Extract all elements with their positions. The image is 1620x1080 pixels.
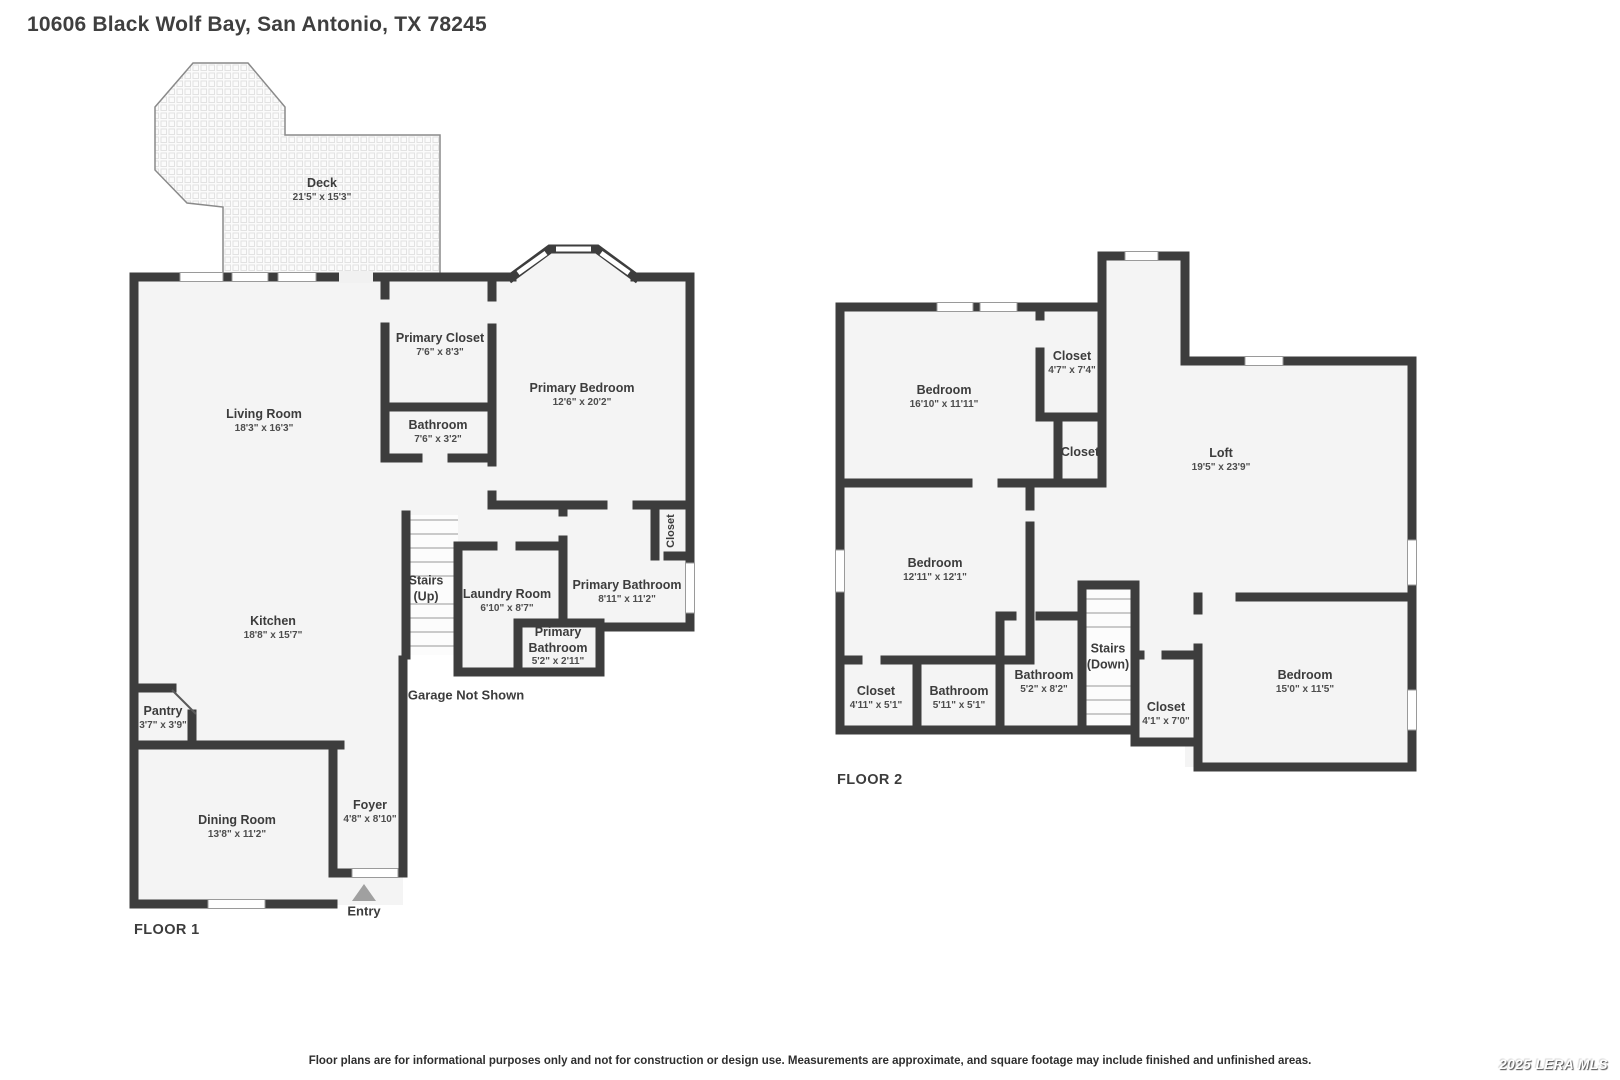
loft-label: Loft 19'5" x 23'9" [1192, 446, 1251, 474]
bathroom-f1-label: Bathroom 7'6" x 3'2" [408, 418, 467, 446]
closet-left-label: Closet 4'11" x 5'1" [850, 684, 903, 712]
primary-bedroom-label: Primary Bedroom 12'6" x 20'2" [530, 381, 635, 409]
foyer-label: Foyer 4'8" x 8'10" [343, 798, 396, 826]
entry-label: Entry [347, 904, 380, 919]
bathroom-mid-label: Bathroom 5'2" x 8'2" [1014, 668, 1073, 696]
laundry-room-label: Laundry Room 6'10" x 8'7" [463, 587, 551, 615]
garage-note: Garage Not Shown [408, 688, 524, 703]
stairs-down-label: Stairs (Down) [1087, 641, 1129, 672]
primary-bathroom-label: Primary Bathroom 8'11" x 11'2" [572, 578, 681, 606]
closet-f1-label: Closet [655, 524, 689, 538]
floor1-tag: FLOOR 1 [134, 922, 200, 938]
bedroom-top-label: Bedroom 16'10" x 11'11" [910, 383, 979, 411]
dining-room-label: Dining Room 13'8" x 11'2" [198, 813, 276, 841]
mls-watermark: 2025 LERA MLS [1499, 1057, 1608, 1072]
bedroom-right-label: Bedroom 15'0" x 11'5" [1276, 668, 1334, 696]
closet-mid-label: Closet [1061, 445, 1099, 461]
deck-shape [155, 63, 440, 277]
bedroom-mid-label: Bedroom 12'11" x 12'1" [903, 556, 967, 584]
floorplan-svg [0, 0, 1620, 1080]
closet-top-label: Closet 4'7" x 7'4" [1048, 349, 1096, 377]
stairs-up-label: Stairs (Up) [409, 573, 444, 604]
living-room-label: Living Room 18'3" x 16'3" [226, 407, 302, 435]
disclaimer-text: Floor plans are for informational purpos… [0, 1055, 1620, 1067]
patio-opening [339, 271, 373, 283]
deck-label: Deck 21'5" x 15'3" [293, 176, 352, 204]
bathroom-left-label: Bathroom 5'11" x 5'1" [929, 684, 988, 712]
pantry-label: Pantry 3'7" x 3'9" [139, 704, 187, 732]
closet-small-label: Closet 4'1" x 7'0" [1142, 700, 1190, 728]
kitchen-label: Kitchen 18'8" x 15'7" [244, 614, 303, 642]
floorplan-page: 10606 Black Wolf Bay, San Antonio, TX 78… [0, 0, 1620, 1080]
primary-bathroom-small-label: Primary Bathroom 5'2" x 2'11" [528, 625, 587, 669]
floor2-tag: FLOOR 2 [837, 772, 903, 788]
primary-closet-label: Primary Closet 7'6" x 8'3" [396, 331, 484, 359]
